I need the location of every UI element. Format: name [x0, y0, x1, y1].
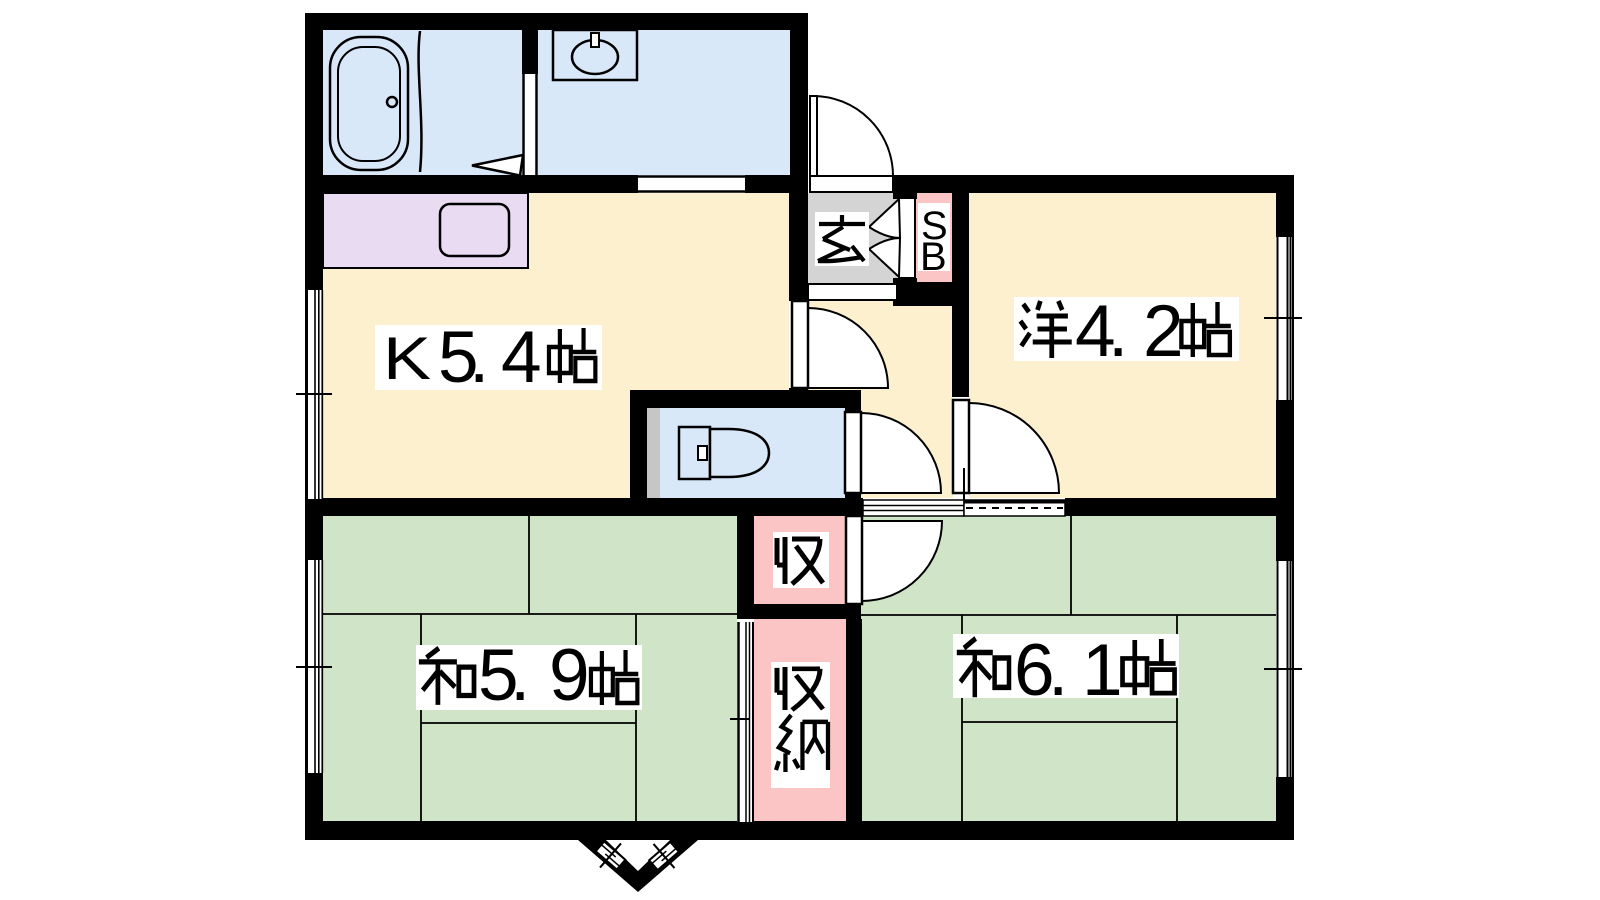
svg-text:.: . [1108, 291, 1128, 372]
svg-text:1: 1 [1082, 630, 1123, 711]
svg-text:K: K [383, 326, 431, 393]
svg-text:.: . [510, 635, 530, 716]
svg-text:B: B [920, 235, 947, 279]
svg-text:4: 4 [501, 317, 542, 398]
svg-text:2: 2 [1143, 291, 1184, 372]
svg-text:.: . [469, 317, 489, 398]
svg-text:9: 9 [549, 635, 590, 716]
svg-text:.: . [1048, 630, 1068, 711]
